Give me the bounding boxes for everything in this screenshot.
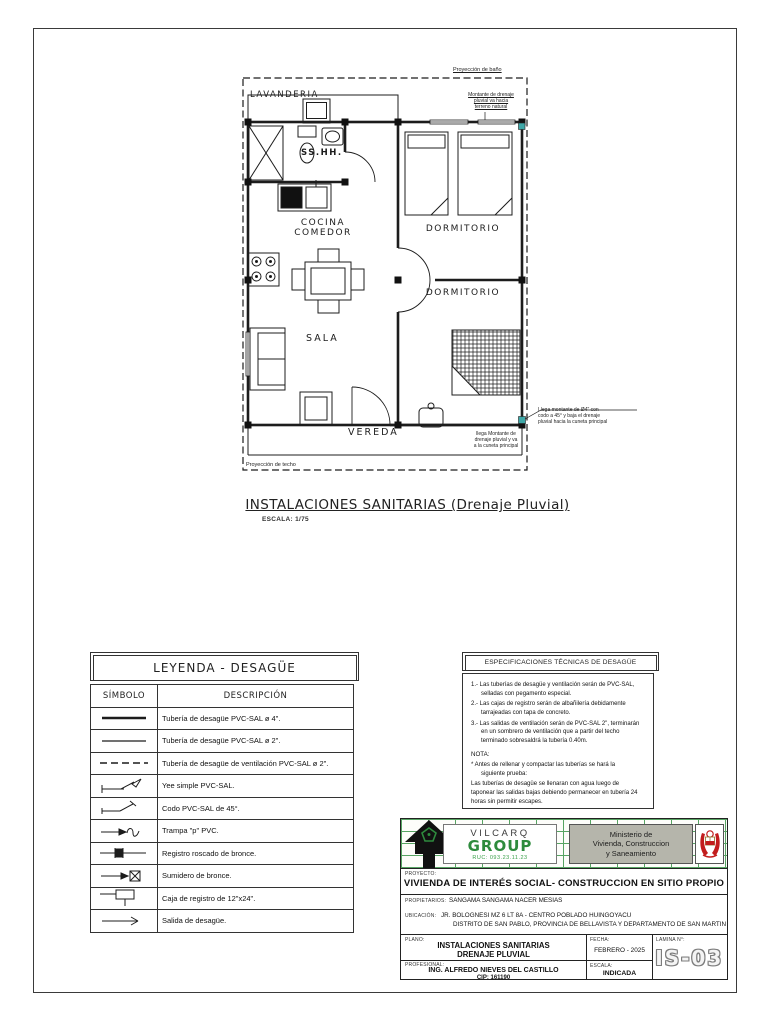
symbol-caja-registro-icon (96, 889, 152, 907)
symbol-yee-icon (96, 778, 152, 794)
room-label-dormitorio-2: DORMITORIO (424, 288, 502, 298)
legend-table: SÍMBOLO DESCRIPCIÓN Tubería de desagüe P… (90, 684, 354, 933)
legend-row: Tubería de desagüe de ventilación PVC-SA… (91, 752, 354, 775)
legend-col-description: DESCRIPCIÓN (158, 685, 354, 708)
title-block-header-band: VILCARQ GROUP RUC: 093.23.11.23 Minister… (401, 819, 727, 869)
scale-cell: ESCALA: INDICADA (587, 961, 653, 980)
plan-scale: ESCALA: 1/75 (262, 516, 309, 523)
sheet-number-cell: LAMINA N°: IS-03 (653, 935, 726, 980)
symbol-salida-desague-icon (96, 913, 152, 929)
vilcarq-logo-box: VILCARQ GROUP RUC: 093.23.11.23 (443, 824, 557, 864)
symbol-pipe-vent-icon (96, 755, 152, 771)
annotation-montante-llega: llega Montante de drenaje pluvial y va a… (464, 432, 528, 449)
symbol-pipe-2-icon (96, 733, 152, 749)
specs-box: 1.- Las tuberías de desagüe y ventilació… (462, 673, 654, 809)
room-label-sala: SALA (306, 334, 339, 345)
annotation-proyeccion-bano: Proyección de baño (452, 67, 503, 73)
location-line-1: JR. BOLOGNESI MZ 6 LT 8A - CENTRO POBLAD… (441, 912, 631, 919)
peru-emblem-box (695, 824, 724, 864)
legend-header-row: SÍMBOLO DESCRIPCIÓN (91, 685, 354, 708)
annotation-montante-detalle: Llega montante de Ø4" con codo a 45° y b… (538, 408, 646, 425)
sheet-number-value: IS-03 (653, 946, 726, 970)
legend-row: Sumidero de bronce. (91, 865, 354, 888)
owner-location-row: PROPIETARIOS: SANGAMA SANGAMA NACER MESI… (401, 895, 727, 935)
legend-col-symbol: SÍMBOLO (91, 685, 158, 708)
professional-cip: CIP: 161190 (401, 975, 586, 981)
legend-row: Yee simple PVC-SAL. (91, 775, 354, 798)
legend-row: Salida de desagüe. (91, 910, 354, 933)
professional-cell: PROFESIONAL: ING. ALFREDO NIEVES DEL CAS… (401, 961, 587, 980)
room-label-lavanderia: LAVANDERIA (250, 91, 319, 101)
symbol-pipe-4-icon (96, 710, 152, 726)
specs-nota-line1: * Antes de rellenar y compactar las tube… (471, 761, 647, 778)
spec-item: 3.- Las salidas de ventilación serán de … (471, 720, 647, 746)
sheet-name-value: INSTALACIONES SANITARIAS DRENAJE PLUVIAL (401, 941, 586, 960)
project-label: PROYECTO: (405, 871, 436, 877)
project-name: VIVIENDA DE INTERÉS SOCIAL- CONSTRUCCION… (401, 878, 727, 889)
legend-title-box: LEYENDA - DESAGÜE (90, 652, 359, 681)
sheet-name-cell: PLANO: INSTALACIONES SANITARIAS DRENAJE … (401, 935, 587, 961)
room-label-vereda: VEREDA (348, 428, 399, 439)
symbol-trampa-p-icon (96, 823, 152, 839)
annotation-proyeccion-techo: Proyección de techo (245, 462, 297, 468)
doors (345, 152, 430, 425)
legend-row: Caja de registro de 12"x24". (91, 887, 354, 910)
specs-title-box: ESPECIFICACIONES TÉCNICAS DE DESAGÜE (462, 652, 659, 671)
plan-title: INSTALACIONES SANITARIAS (Drenaje Pluvia… (235, 497, 580, 513)
date-cell: FECHA: FEBRERO - 2025 (587, 935, 653, 961)
project-row: PROYECTO: VIVIENDA DE INTERÉS SOCIAL- CO… (401, 869, 727, 895)
legend-row: Codo PVC-SAL de 45°. (91, 797, 354, 820)
symbol-sumidero-icon (96, 868, 152, 884)
scale-label: ESCALA: (590, 963, 613, 969)
owners-value: SANGAMA SANGAMA NACER MESIAS (449, 897, 562, 904)
symbol-registro-roscado-icon (96, 845, 152, 861)
bedroom2-bed (419, 330, 520, 427)
specs-title: ESPECIFICACIONES TÉCNICAS DE DESAGÜE (465, 655, 657, 671)
location-line-2: DISTRITO DE SAN PABLO, PROVINCIA DE BELL… (453, 921, 726, 928)
legend-row: Tubería de desagüe PVC-SAL ø 2". (91, 730, 354, 753)
room-label-cocina-comedor: COCINA COMEDOR (293, 218, 353, 239)
drawing-sheet: { "plan": { "title": "INSTALACIONES SANI… (0, 0, 768, 1024)
title-block-bottom-grid: PLANO: INSTALACIONES SANITARIAS DRENAJE … (401, 935, 727, 980)
peru-coat-of-arms-icon (699, 829, 721, 859)
legend-row: Tubería de desagüe PVC-SAL ø 4". (91, 707, 354, 730)
annotation-montante-sube: Montante de drenaje pluvial va hacia ter… (460, 93, 522, 110)
scale-value: INDICADA (587, 970, 652, 977)
sheet-number-label: LAMINA N°: (656, 937, 685, 943)
ministry-box: Ministerio de Vivienda, Construccion y S… (569, 824, 693, 864)
legend-row: Trampa "p" PVC. (91, 820, 354, 843)
spec-item: 2.- Las cajas de registro serán de albañ… (471, 700, 647, 717)
brand-name-main: GROUP (444, 839, 556, 854)
specs-nota-label: NOTA: (471, 751, 647, 758)
symbol-codo-45-icon (96, 800, 152, 816)
specs-nota-line2: Las tuberías de desagüe se llenaran con … (471, 780, 647, 806)
location-label: UBICACIÓN: (405, 913, 436, 919)
roof-projection-outline (243, 78, 527, 470)
legend-row: Registro roscado de bronce. (91, 842, 354, 865)
bedroom1-beds (405, 132, 512, 215)
spec-item: 1.- Las tuberías de desagüe y ventilació… (471, 681, 647, 698)
room-label-dormitorio-1: DORMITORIO (424, 224, 502, 234)
professional-name: ING. ALFREDO NIEVES DEL CASTILLO (401, 967, 586, 974)
date-label: FECHA: (590, 937, 610, 943)
room-label-sshh: SS.HH. (301, 149, 343, 159)
legend-title: LEYENDA - DESAGÜE (93, 655, 357, 681)
date-value: FEBRERO - 2025 (587, 947, 652, 954)
dining-set (292, 249, 364, 313)
title-block: VILCARQ GROUP RUC: 093.23.11.23 Minister… (400, 818, 728, 980)
brand-contact: RUC: 093.23.11.23 (444, 856, 556, 862)
owners-label: PROPIETARIOS: (405, 898, 446, 904)
